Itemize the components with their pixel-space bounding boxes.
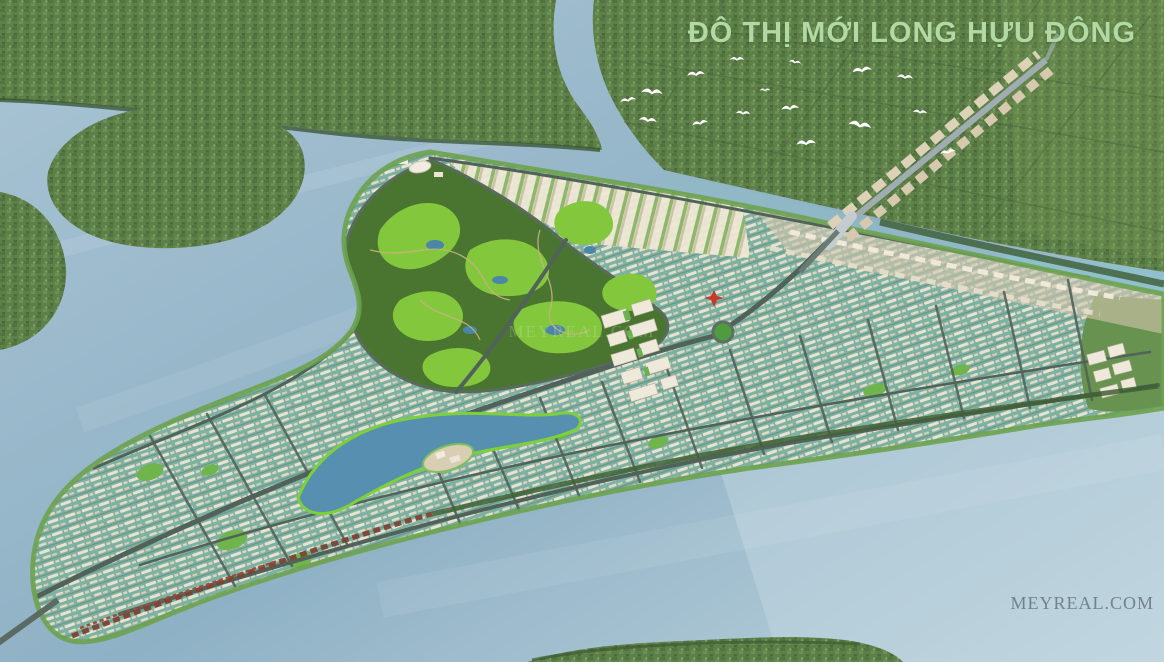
masterplan-aerial-render: ĐÔ THỊ MỚI LONG HỰU ĐÔNG MEYREAL.COM MEY… xyxy=(0,0,1164,662)
watermark-bottom-right: MEYREAL.COM xyxy=(1010,593,1154,614)
project-title: ĐÔ THỊ MỚI LONG HỰU ĐÔNG xyxy=(688,17,1136,50)
roundabout xyxy=(713,322,733,342)
watermark-center: MEYREAL.COM xyxy=(508,322,655,342)
